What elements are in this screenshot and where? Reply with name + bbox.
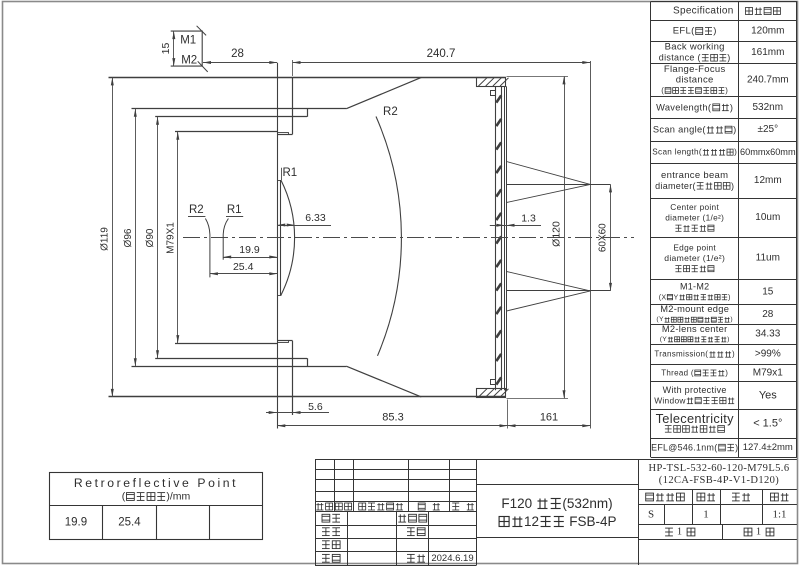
svg-text:Ø90: Ø90 [145, 228, 156, 247]
svg-text:diameter(: diameter( [655, 181, 696, 191]
svg-text:Ø96: Ø96 [123, 228, 134, 247]
svg-text:R2: R2 [189, 204, 204, 216]
svg-text:Telecentricity: Telecentricity [656, 411, 734, 426]
svg-text:85.3: 85.3 [382, 411, 403, 423]
svg-text:Yes: Yes [759, 389, 777, 401]
svg-text:): ) [732, 350, 735, 359]
svg-text:60mmx60mm: 60mmx60mm [740, 147, 796, 157]
svg-text:1:1: 1:1 [772, 509, 786, 521]
svg-text:Scan length(: Scan length( [652, 148, 702, 157]
svg-text:< 1.5°: < 1.5° [753, 418, 782, 430]
svg-text:Scan angle(: Scan angle( [653, 125, 707, 135]
svg-text:Edge point: Edge point [673, 243, 716, 253]
svg-text:12mm: 12mm [754, 175, 782, 186]
svg-text:M2: M2 [181, 55, 197, 67]
svg-text:): ) [734, 148, 737, 157]
svg-text:Wavelength(: Wavelength( [656, 102, 712, 112]
svg-text:(: ( [122, 491, 126, 503]
svg-text:120mm: 120mm [751, 26, 784, 37]
svg-text:): ) [730, 316, 733, 323]
svg-text:EFL@546.1nm(: EFL@546.1nm( [651, 443, 717, 453]
svg-text:12: 12 [524, 514, 539, 529]
svg-text:127.4±2mm: 127.4±2mm [743, 442, 793, 453]
svg-text:161mm: 161mm [751, 47, 784, 58]
svg-text:15: 15 [160, 43, 172, 55]
svg-text:M2-lens center: M2-lens center [662, 324, 728, 334]
svg-text:28: 28 [762, 309, 774, 320]
svg-text:): ) [727, 336, 730, 343]
svg-text:10um: 10um [755, 212, 780, 223]
svg-text:161: 161 [540, 411, 558, 423]
svg-text:distance: distance [676, 75, 714, 86]
svg-text:R1: R1 [227, 204, 242, 216]
svg-text:15: 15 [762, 286, 774, 297]
svg-text:2024.6.19: 2024.6.19 [431, 553, 473, 564]
svg-text:): ) [735, 443, 738, 453]
svg-text:distance (: distance ( [659, 53, 701, 63]
svg-text:): ) [730, 102, 733, 112]
svg-text:240.7: 240.7 [427, 48, 456, 60]
svg-text:Y: Y [674, 293, 679, 302]
svg-text:Retroreflective Point: Retroreflective Point [74, 476, 238, 490]
svg-text:Ø119: Ø119 [100, 227, 111, 251]
svg-text:28: 28 [231, 48, 244, 60]
svg-text:19.9: 19.9 [65, 517, 87, 529]
svg-text:Thread (: Thread ( [661, 368, 694, 377]
svg-text:19.9: 19.9 [239, 244, 260, 256]
svg-text:M79x1: M79x1 [753, 367, 783, 378]
svg-text:M1: M1 [180, 34, 196, 46]
svg-text:R1: R1 [282, 167, 297, 179]
svg-text:(Y: (Y [656, 316, 664, 323]
svg-text:Window: Window [654, 396, 686, 406]
svg-text:): ) [728, 293, 731, 302]
svg-text:34.33: 34.33 [755, 329, 780, 340]
svg-text:(Y: (Y [660, 336, 668, 343]
svg-text:): ) [725, 368, 728, 377]
svg-text:): ) [733, 125, 736, 135]
svg-text:With protective: With protective [663, 385, 727, 395]
svg-text:11um: 11um [756, 253, 780, 264]
svg-text:(X: (X [659, 293, 667, 302]
svg-text:1.3: 1.3 [521, 212, 536, 224]
svg-text:532nm: 532nm [753, 102, 784, 113]
svg-text:240.7mm: 240.7mm [747, 75, 789, 86]
svg-text:M2-mount edge: M2-mount edge [660, 304, 729, 314]
svg-text:Specification: Specification [673, 6, 734, 17]
svg-text:)/mm: )/mm [166, 491, 190, 503]
svg-text:diameter (1/e²): diameter (1/e²) [664, 253, 725, 263]
svg-text:entrance beam: entrance beam [661, 170, 728, 181]
svg-text:F120: F120 [501, 496, 536, 511]
svg-text:(532nm): (532nm) [562, 496, 612, 511]
svg-text:±25°: ±25° [757, 124, 778, 135]
svg-text:(: ( [661, 86, 664, 95]
svg-text:): ) [725, 86, 728, 95]
svg-text:6.33: 6.33 [305, 212, 326, 224]
svg-text:): ) [731, 181, 734, 191]
svg-text:Center point: Center point [670, 202, 719, 212]
svg-text:1: 1 [753, 527, 764, 538]
svg-text:>99%: >99% [755, 349, 781, 360]
svg-text:1: 1 [674, 527, 685, 538]
svg-text:M1-M2: M1-M2 [680, 282, 710, 292]
svg-text:): ) [727, 53, 730, 63]
svg-text:Ø120: Ø120 [550, 221, 562, 247]
svg-text:FSB-4P: FSB-4P [566, 514, 617, 529]
svg-text:R2: R2 [383, 106, 398, 118]
svg-text:EFL(: EFL( [673, 26, 695, 37]
svg-text:25.4: 25.4 [233, 261, 254, 273]
svg-text:Back working: Back working [665, 42, 725, 53]
svg-text:HP-TSL-532-60-120-M79L5.6: HP-TSL-532-60-120-M79L5.6 [649, 463, 790, 474]
svg-text:1: 1 [703, 509, 709, 521]
svg-text:diameter (1/e²): diameter (1/e²) [665, 213, 724, 223]
svg-text:60X60: 60X60 [597, 223, 608, 252]
svg-text:(12CA-FSB-4P-V1-D120): (12CA-FSB-4P-V1-D120) [659, 475, 780, 486]
svg-text:M79X1: M79X1 [166, 222, 177, 254]
svg-text:): ) [713, 26, 716, 37]
svg-text:S: S [648, 509, 654, 521]
svg-text:5.6: 5.6 [308, 401, 323, 413]
svg-text:Flange-Focus: Flange-Focus [664, 64, 726, 75]
svg-text:25.4: 25.4 [118, 517, 141, 529]
svg-text:Transmission(: Transmission( [654, 350, 708, 359]
